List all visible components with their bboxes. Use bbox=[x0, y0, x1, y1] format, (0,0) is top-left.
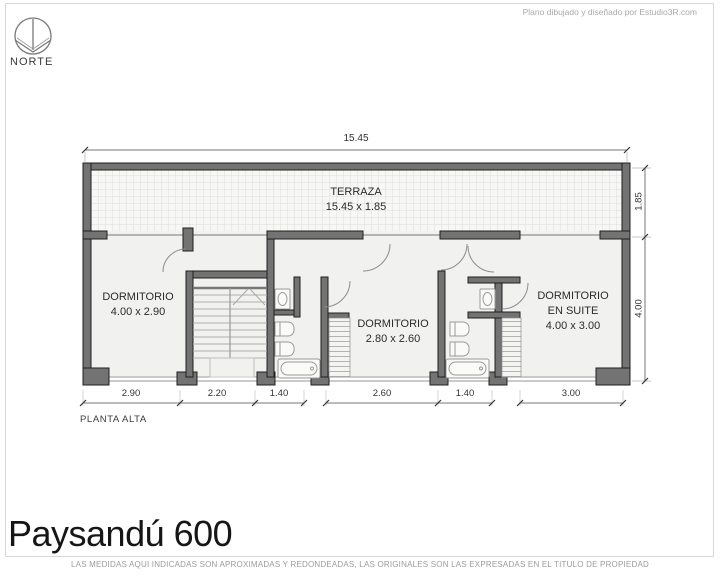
room-name: DORMITORIO bbox=[343, 317, 443, 332]
dim-bottom-5: 1.40 bbox=[430, 388, 500, 399]
room-dims: 15.45 x 1.85 bbox=[276, 200, 436, 215]
room-label-dormitorio-1: DORMITORIO 4.00 x 2.90 bbox=[88, 290, 188, 320]
dim-bottom-3: 1.40 bbox=[244, 388, 314, 399]
dim-bottom-1: 2.90 bbox=[96, 388, 166, 399]
room-name-2: EN SUITE bbox=[523, 304, 623, 319]
dim-bottom-6: 3.00 bbox=[536, 388, 606, 399]
bottom-window-band bbox=[91, 377, 622, 381]
page-title: Paysandú 600 bbox=[8, 513, 232, 555]
plan-level-label: PLANTA ALTA bbox=[80, 414, 147, 425]
room-name: DORMITORIO bbox=[523, 289, 623, 304]
dim-terrace-depth: 1.85 bbox=[634, 182, 645, 222]
room-dims: 4.00 x 3.00 bbox=[523, 319, 623, 334]
room-dims: 2.80 x 2.60 bbox=[343, 332, 443, 347]
footer-disclaimer: LAS MEDIDAS AQUI INDICADAS SON APROXIMAD… bbox=[0, 560, 720, 569]
room-label-terraza: TERRAZA 15.45 x 1.85 bbox=[276, 185, 436, 215]
room-name: DORMITORIO bbox=[88, 290, 188, 305]
dim-bottom-4: 2.60 bbox=[347, 388, 417, 399]
dim-rooms-depth: 4.00 bbox=[634, 289, 645, 329]
dim-bottom-2: 2.20 bbox=[182, 388, 252, 399]
floor-plan-drawing bbox=[0, 0, 720, 576]
room-dims: 4.00 x 2.90 bbox=[88, 305, 188, 320]
room-label-dormitorio-2: DORMITORIO 2.80 x 2.60 bbox=[343, 317, 443, 347]
room-name: TERRAZA bbox=[276, 185, 436, 200]
room-label-dormitorio-en-suite: DORMITORIO EN SUITE 4.00 x 3.00 bbox=[523, 289, 623, 334]
dim-total-width: 15.45 bbox=[316, 133, 396, 144]
